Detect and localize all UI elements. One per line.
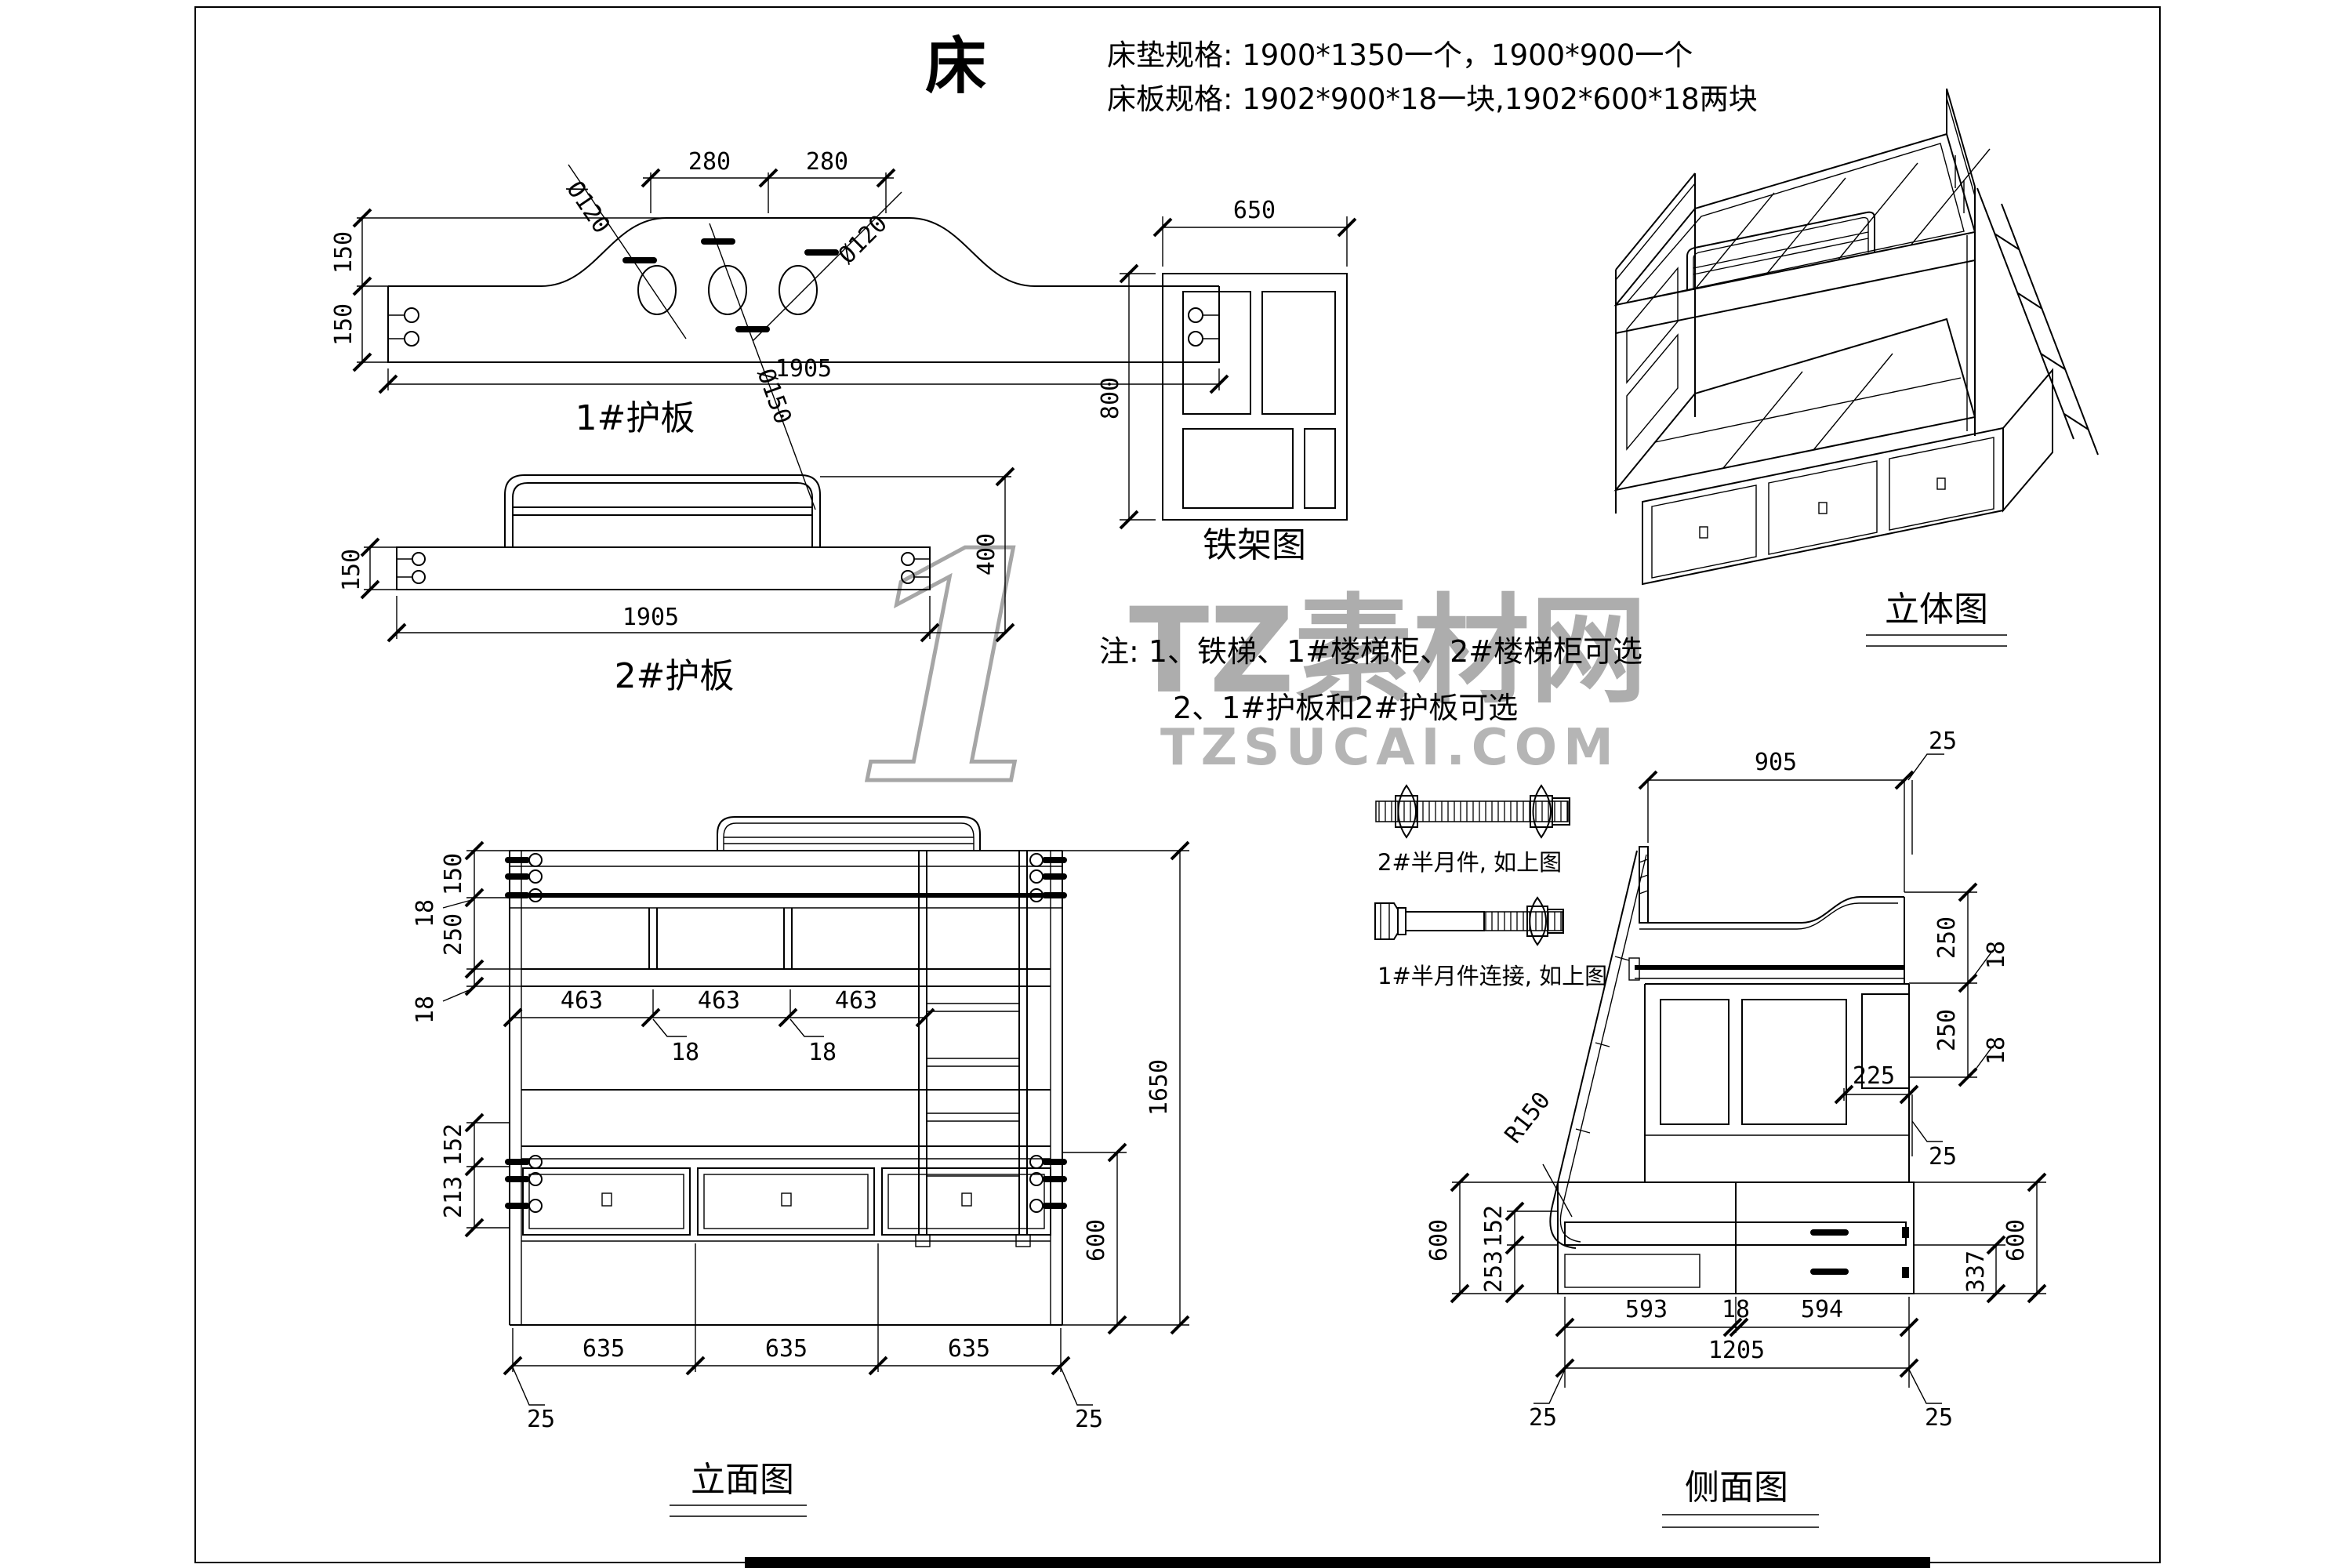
dim-18a: 18 <box>412 899 439 927</box>
dim-18c: 18 <box>671 1039 699 1066</box>
dim-593: 593 <box>1625 1296 1668 1323</box>
guard2-label: 2#护板 <box>615 656 735 696</box>
isometric-view: 立体图 <box>1568 63 2156 666</box>
ironframe-outline <box>1163 274 1347 520</box>
dim-18a: 18 <box>1983 941 2010 969</box>
dim-463b: 463 <box>698 987 740 1014</box>
dia-120-left: Ø120 <box>561 176 615 238</box>
dim-18d: 18 <box>808 1039 837 1066</box>
dim-280-left: 280 <box>688 148 731 176</box>
dim-150: 150 <box>338 549 365 591</box>
dim-800: 800 <box>1097 377 1124 419</box>
dim-250b: 250 <box>1933 1009 1961 1051</box>
drawing-sheet: 1 TZ素材网 TZSUCAI.COM 床 床垫规格: 1900*1350一个，… <box>0 0 2352 1568</box>
dim-635a: 635 <box>583 1335 625 1363</box>
dim-18b: 18 <box>1983 1036 2010 1065</box>
dim-1905: 1905 <box>622 604 679 631</box>
dim-25-br: 25 <box>1925 1404 1953 1432</box>
front-bed-drawing <box>508 817 1064 1325</box>
drawers <box>523 1168 1051 1235</box>
front-elevation-view: 150 18 250 18 152 213 463 463 463 18 18 <box>408 808 1239 1529</box>
dim-150-lower: 150 <box>330 303 358 346</box>
dim-25-right: 25 <box>1075 1406 1103 1433</box>
isometric-label: 立体图 <box>1885 590 1988 630</box>
dia-120-right: Ø120 <box>833 210 893 270</box>
dim-25-bl: 25 <box>1529 1404 1557 1432</box>
dim-r150: R150 <box>1500 1087 1556 1148</box>
guard1-dimensions: 280 280 Ø120 Ø120 Ø150 150 150 1905 <box>330 148 1228 510</box>
side-base <box>1558 1182 1914 1294</box>
side-view: 905 25 250 18 250 18 225 25 R150 6 <box>1435 706 2070 1568</box>
dim-1905: 1905 <box>775 355 832 383</box>
side-dimensions: 905 25 250 18 250 18 225 25 R150 6 <box>1425 728 2046 1432</box>
dim-635c: 635 <box>948 1335 990 1363</box>
dim-152: 152 <box>1480 1205 1508 1247</box>
dim-905: 905 <box>1755 749 1797 776</box>
front-elevation-label: 立面图 <box>691 1460 794 1500</box>
front-dimensions: 150 18 250 18 152 213 463 463 463 18 18 <box>412 842 1189 1433</box>
dim-150: 150 <box>440 853 467 895</box>
dim-18b: 18 <box>412 996 439 1024</box>
dim-253: 253 <box>1480 1250 1508 1293</box>
side-view-label: 侧面图 <box>1685 1468 1788 1508</box>
dim-213: 213 <box>440 1176 467 1218</box>
side-ladder <box>1550 851 1646 1248</box>
dim-1205: 1205 <box>1708 1337 1765 1364</box>
dim-594: 594 <box>1801 1296 1843 1323</box>
dim-280-right: 280 <box>806 148 848 176</box>
dim-250: 250 <box>440 913 467 956</box>
dim-600-left: 600 <box>1425 1219 1453 1261</box>
dim-1650: 1650 <box>1145 1059 1173 1116</box>
dim-600: 600 <box>1083 1219 1110 1261</box>
iso-bed-drawing <box>1616 89 2098 584</box>
dim-635b: 635 <box>765 1335 808 1363</box>
guard1-label: 1#护板 <box>575 398 695 438</box>
dim-463a: 463 <box>561 987 603 1014</box>
guard2-view: 150 400 1905 2#护板 <box>337 459 1082 710</box>
dim-337: 337 <box>1962 1250 1990 1293</box>
note-line-1: 注: 1、铁梯、1#楼梯柜、2#楼梯柜可选 <box>1099 627 1642 670</box>
ironframe-dimensions: 650 800 <box>1097 197 1356 528</box>
dim-25-left: 25 <box>527 1406 555 1433</box>
dim-400: 400 <box>973 533 1000 575</box>
guard2-outline <box>397 475 930 590</box>
ironframe-label: 铁架图 <box>1203 525 1306 565</box>
dim-152: 152 <box>440 1123 467 1166</box>
page-title: 床 <box>925 17 989 105</box>
dim-650: 650 <box>1233 197 1276 224</box>
dim-25-mid: 25 <box>1929 1143 1957 1171</box>
dim-463c: 463 <box>835 987 877 1014</box>
dim-150-upper: 150 <box>330 231 358 274</box>
dim-250a: 250 <box>1933 916 1961 959</box>
dim-25-top: 25 <box>1929 728 1957 755</box>
dim-18c: 18 <box>1722 1296 1750 1323</box>
dim-225: 225 <box>1853 1062 1895 1090</box>
dim-600-right: 600 <box>2002 1219 2030 1261</box>
ironframe-view: 650 800 铁架图 <box>1098 188 1380 572</box>
